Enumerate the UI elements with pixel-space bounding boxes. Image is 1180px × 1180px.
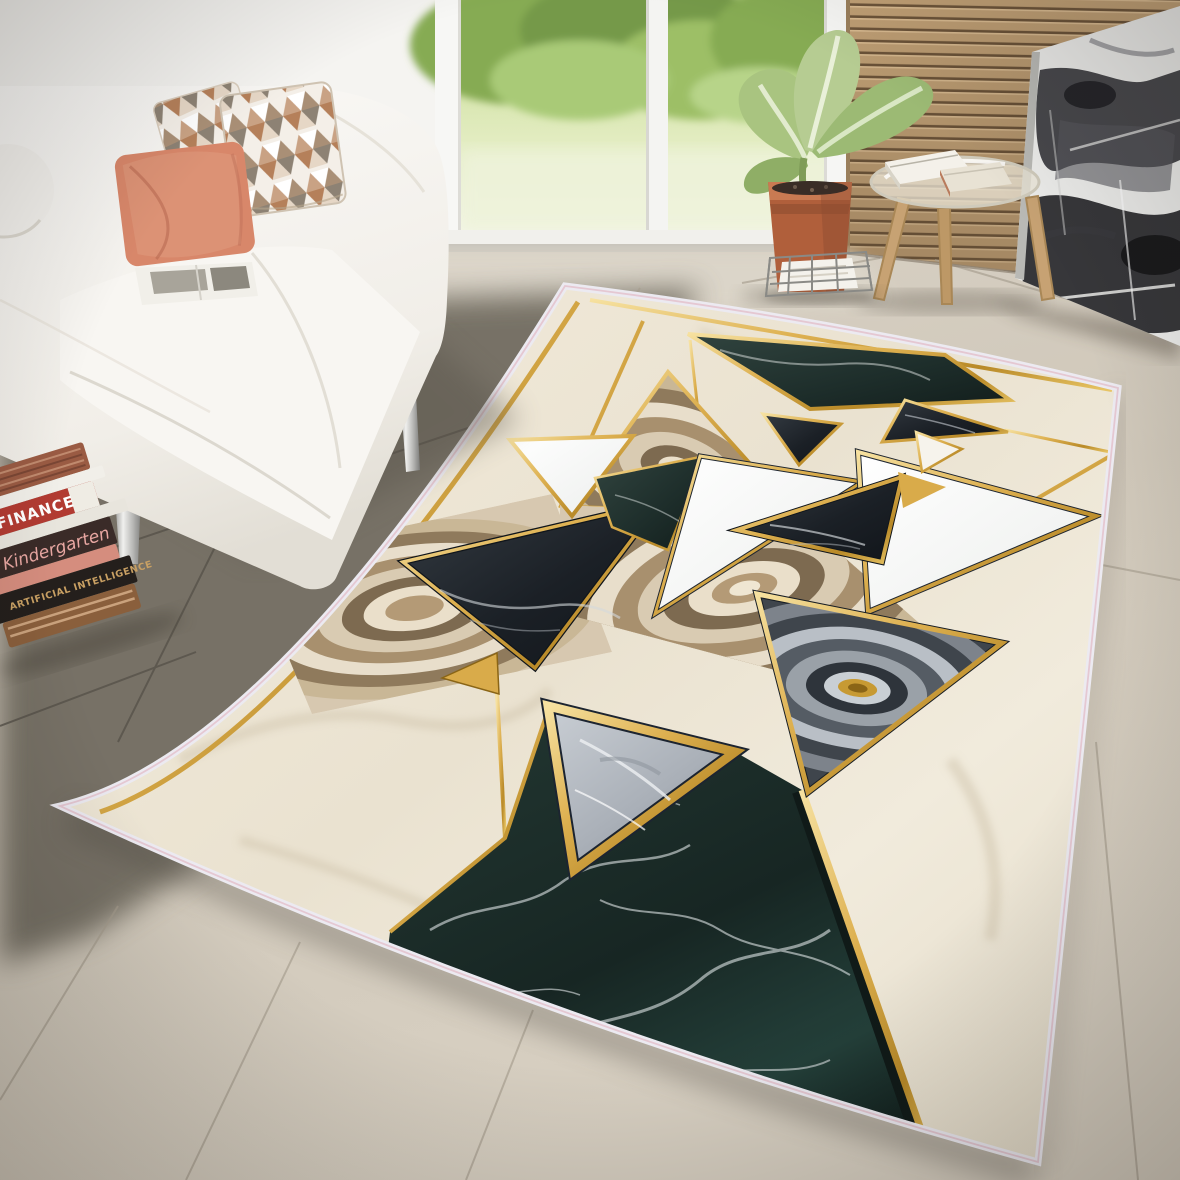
scene-svg: FINANCE Kindergarten ARTIFICIAL INTELLIG… xyxy=(0,0,1180,1180)
product-photo-living-room: FINANCE Kindergarten ARTIFICIAL INTELLIG… xyxy=(0,0,1180,1180)
photo-vignette xyxy=(0,0,1180,1180)
